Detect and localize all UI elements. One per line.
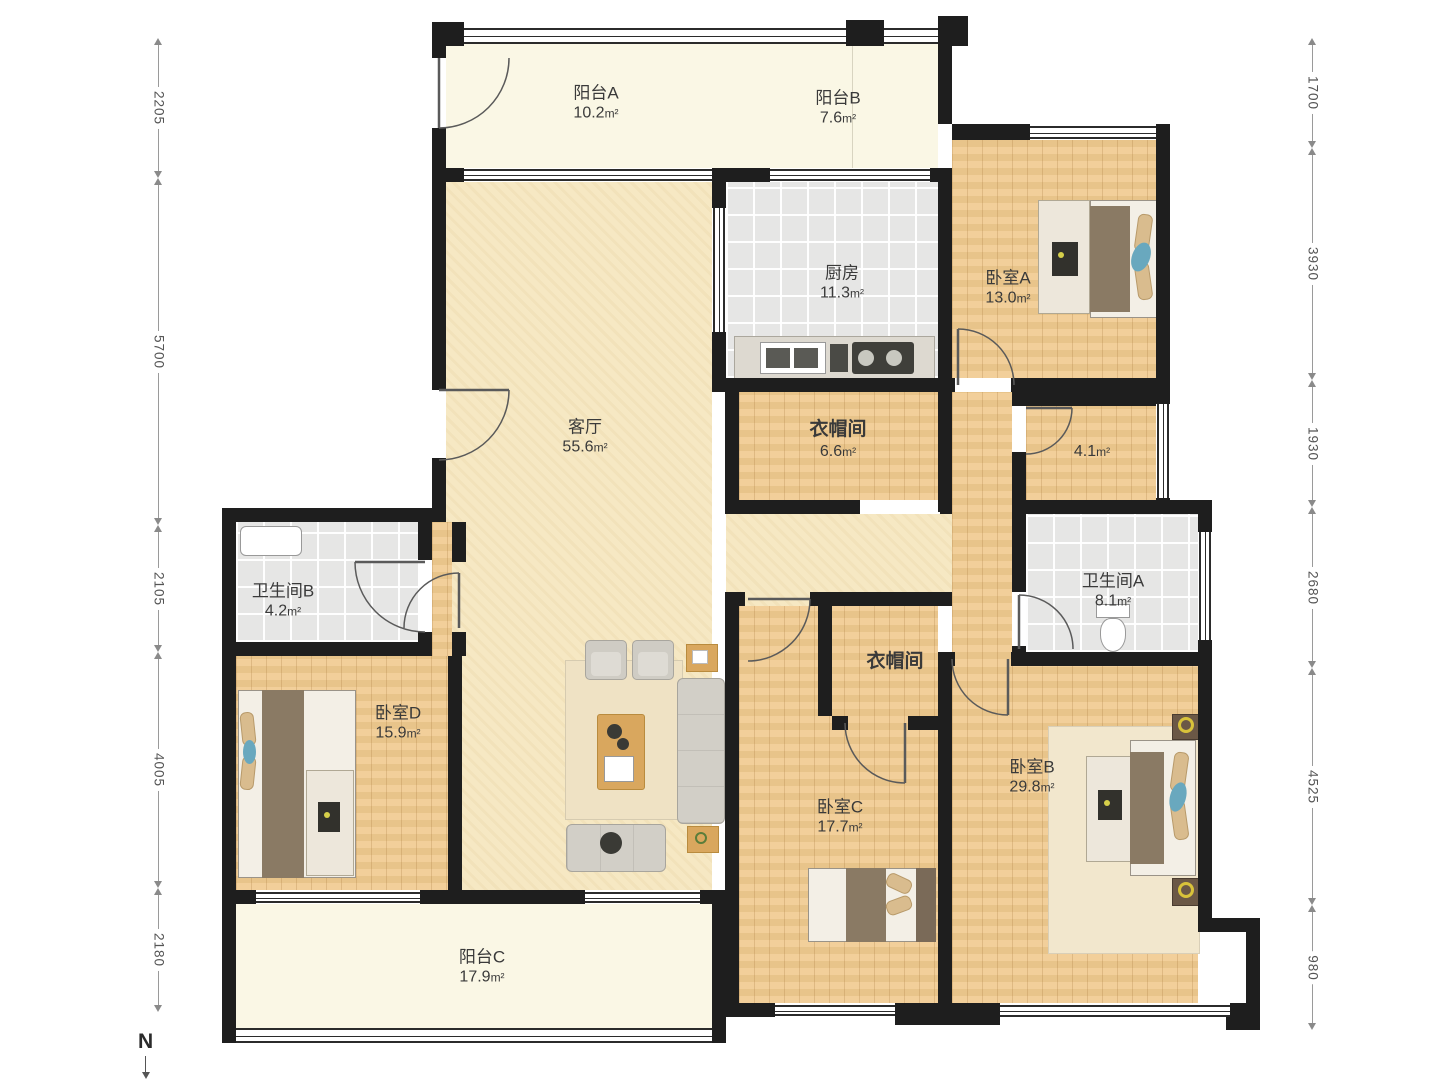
dimension-left-3: 2105 (148, 525, 170, 652)
window-bedroom-b (1000, 1005, 1230, 1017)
window-living-balcony-slider (464, 169, 712, 181)
wall (452, 632, 466, 656)
wall (712, 168, 770, 182)
kitchen-appliance (830, 344, 848, 372)
room-label-living: 客厅 55.6m² (562, 416, 607, 457)
wall (418, 508, 432, 560)
window-balcony-top-2 (884, 28, 938, 44)
kitchen-sliding-door (713, 208, 725, 332)
room-label-balcony-b: 阳台B 7.6m² (815, 87, 860, 128)
room-label-balcony-c: 阳台C 17.9m² (459, 946, 505, 987)
bedroom-b-blanket (1130, 752, 1164, 864)
wall (938, 652, 955, 666)
coffee-table-decor-1 (607, 724, 622, 739)
wall (940, 500, 952, 514)
dimension-left-5: 2180 (148, 888, 170, 1012)
wall (810, 592, 952, 606)
wall (725, 606, 739, 1003)
window-living-balcony-c (585, 892, 700, 903)
wall (1012, 500, 1212, 514)
bedroom-d-wardrobe-knob (324, 812, 330, 818)
wall (1246, 918, 1260, 1030)
sink-bowl-left (766, 348, 790, 368)
room-label-cloakroom-2: 衣帽间 (866, 650, 923, 674)
wall (1012, 392, 1156, 406)
wall (1156, 124, 1170, 404)
bedroom-c-headboard (916, 868, 936, 942)
wall (1212, 918, 1246, 932)
bedroom-b-wardrobe-panel (1098, 790, 1122, 820)
dimension-left-2: 5700 (148, 178, 170, 525)
room-label-balcony-a: 阳台A 10.2m² (573, 82, 618, 123)
living-armchair-2-seat (638, 652, 668, 676)
dimension-left-4: 4005 (148, 652, 170, 888)
room-label-bedroom-a: 卧室A 13.0m² (985, 267, 1030, 308)
wall (446, 168, 464, 182)
wall (895, 1003, 1000, 1025)
wall (1226, 1016, 1246, 1030)
bedroom-a-wardrobe-knob (1058, 252, 1064, 258)
wall (725, 392, 739, 514)
wall (938, 16, 968, 46)
wall (1011, 378, 1170, 392)
dimension-left-1: 2205 (148, 38, 170, 178)
wall (432, 172, 446, 390)
wall (432, 128, 446, 172)
window-bedroom-d (256, 892, 420, 903)
bathroom-a-toilet-bowl (1100, 618, 1126, 652)
window-storage-room (1157, 404, 1169, 498)
wall (908, 716, 952, 730)
wall (1198, 500, 1212, 532)
wall (222, 508, 236, 1043)
floor-corridor (952, 392, 1012, 666)
wall (938, 392, 952, 512)
living-sofa (677, 678, 725, 824)
room-label-cloakroom-1: 衣帽间 6.6m² (809, 418, 866, 462)
dimension-right-2: 3930 (1302, 148, 1324, 380)
bedroom-d-throw (243, 740, 256, 764)
window-bathroom-a (1199, 532, 1211, 640)
window-balcony-c (236, 1028, 712, 1043)
window-balcony-top (464, 28, 846, 44)
room-label-bedroom-c: 卧室C 17.7m² (817, 796, 863, 837)
window-bedroom-c (775, 1005, 895, 1016)
side-table-book (692, 650, 708, 664)
wall (448, 656, 462, 890)
wall (420, 890, 585, 904)
north-compass: N (138, 1030, 153, 1079)
wall (832, 716, 848, 730)
room-label-bedroom-d: 卧室D 15.9m² (375, 702, 421, 743)
wall (725, 500, 860, 514)
side-table-plant (695, 832, 707, 844)
wall (432, 22, 446, 58)
stove-burner-right (886, 350, 902, 366)
sink-bowl-right (794, 348, 818, 368)
wall (1198, 666, 1212, 932)
wall (222, 642, 432, 656)
floor-balcony-a-b (446, 44, 938, 168)
bathroom-b-basin (240, 526, 302, 556)
room-label-bathroom-a: 卫生间A 8.1m² (1082, 570, 1144, 611)
wall (222, 890, 256, 904)
wall (1011, 652, 1212, 666)
coffee-table-tray (604, 756, 634, 782)
dimension-right-1: 1700 (1302, 38, 1324, 148)
room-label-kitchen: 厨房 11.3m² (820, 262, 864, 303)
dimension-right-4: 2680 (1302, 507, 1324, 668)
room-label-bedroom-b: 卧室B 29.8m² (1009, 756, 1054, 797)
wall (222, 508, 446, 522)
floor-corridor-d (432, 522, 452, 656)
window-bedroom-a (1030, 126, 1156, 139)
bedroom-b-lamp-1 (1178, 717, 1194, 733)
bedroom-d-blanket (262, 690, 304, 878)
wall (712, 182, 726, 208)
wall (725, 592, 745, 606)
dimension-right-3: 1930 (1302, 380, 1324, 507)
wall (952, 124, 1030, 140)
coffee-table-decor-2 (617, 738, 629, 750)
living-armchair-1-seat (591, 652, 621, 676)
wall (938, 168, 952, 392)
wall (1012, 514, 1026, 592)
bedroom-a-wardrobe-panel (1052, 242, 1078, 276)
dimension-right-5: 4525 (1302, 668, 1324, 905)
wall (938, 44, 952, 124)
wall (712, 378, 952, 392)
wall (846, 20, 884, 46)
dimension-right-6: 980 (1302, 905, 1324, 1030)
wall (725, 1003, 775, 1017)
stove-burner-left (858, 350, 874, 366)
wall (712, 890, 726, 1043)
room-label-storage: 4.1m² (1074, 442, 1110, 462)
window-kitchen-balcony (770, 169, 930, 181)
bedroom-b-wardrobe-knob (1104, 800, 1110, 806)
room-label-bathroom-b: 卫生间B 4.2m² (252, 580, 314, 621)
wall (938, 378, 955, 392)
wall (818, 606, 832, 716)
compass-n-label: N (138, 1030, 153, 1054)
bedroom-c-blanket (846, 868, 886, 942)
loveseat-cushion (600, 832, 622, 854)
bedroom-a-blanket (1090, 206, 1130, 312)
wall (452, 522, 466, 562)
compass-arrow-stem (145, 1056, 146, 1072)
floor-plan-canvas: 阳台A 10.2m² 阳台B 7.6m² 厨房 11.3m² 卧室A 13.0m… (0, 0, 1440, 1080)
bedroom-b-lamp-2 (1178, 882, 1194, 898)
wall (1012, 646, 1026, 652)
compass-arrow-head (142, 1072, 150, 1079)
